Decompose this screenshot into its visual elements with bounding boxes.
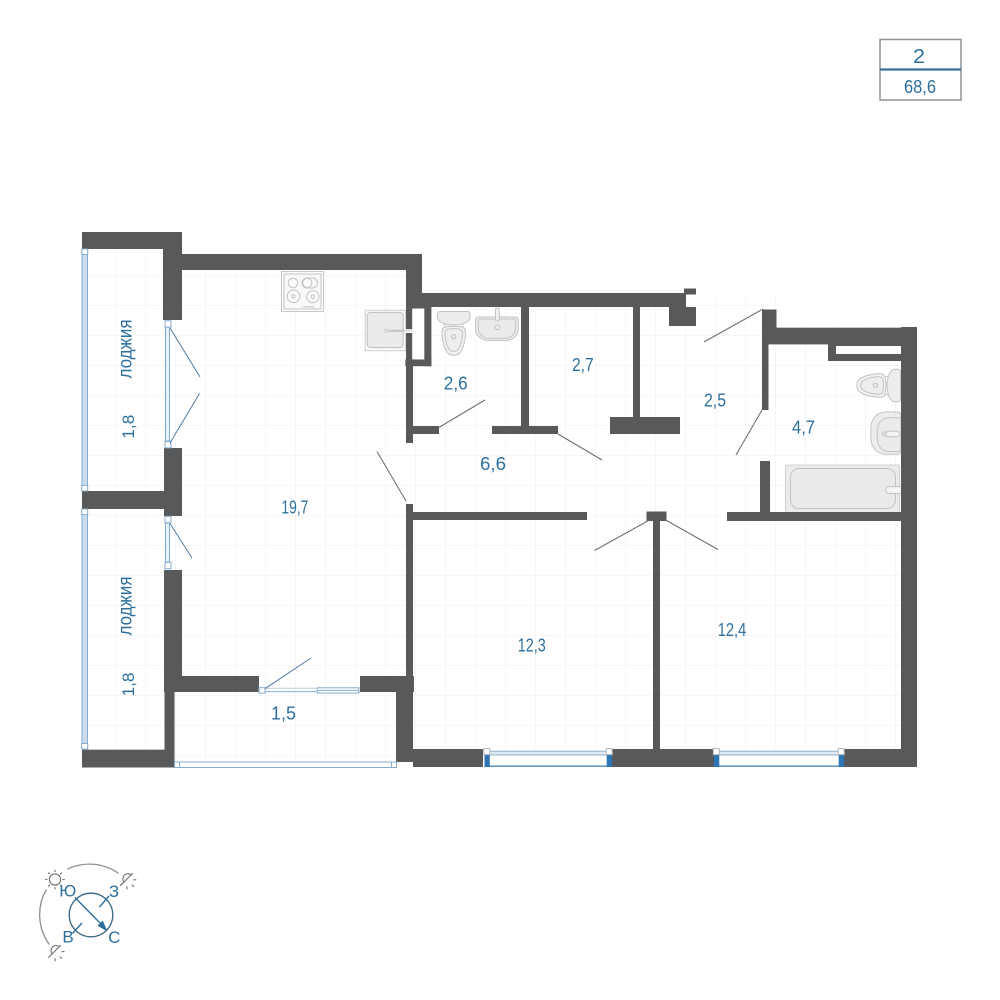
svg-text:6,6: 6,6 [480,453,506,474]
svg-text:1,8: 1,8 [120,673,138,697]
svg-text:4,7: 4,7 [792,417,815,438]
svg-text:19,7: 19,7 [281,497,308,518]
svg-text:1,8: 1,8 [120,415,138,439]
svg-text:Ю: Ю [59,881,76,900]
svg-text:12,3: 12,3 [518,635,546,656]
svg-text:2: 2 [913,46,925,68]
svg-text:2,6: 2,6 [444,373,468,394]
svg-text:2,7: 2,7 [572,354,594,375]
svg-text:2,5: 2,5 [704,390,726,411]
svg-text:З: З [109,882,119,901]
svg-text:12,4: 12,4 [718,619,747,640]
svg-text:1,5: 1,5 [271,703,296,724]
svg-text:С: С [108,928,120,947]
svg-text:68,6: 68,6 [904,76,936,97]
svg-text:лоджия: лоджия [116,320,137,379]
svg-text:В: В [62,928,73,947]
svg-text:лоджия: лоджия [116,577,137,636]
